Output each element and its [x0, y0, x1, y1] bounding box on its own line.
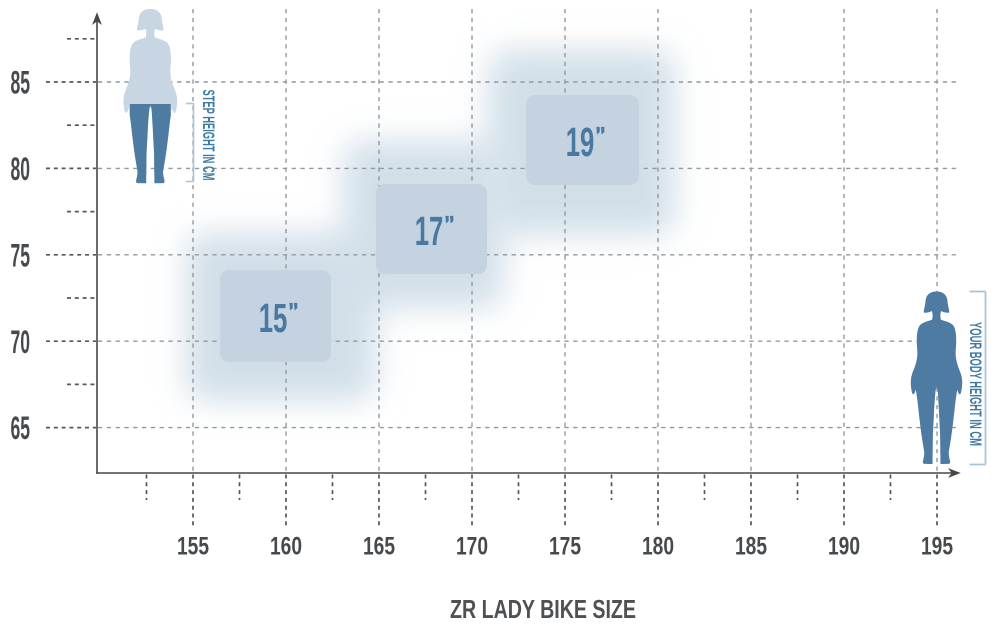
svg-text:180: 180 — [642, 533, 674, 561]
svg-text:65: 65 — [11, 410, 31, 446]
svg-text:85: 85 — [11, 65, 31, 101]
svg-text:175: 175 — [549, 533, 581, 561]
svg-text:YOUR BODY HEIGHT IN CM: YOUR BODY HEIGHT IN CM — [966, 322, 985, 446]
svg-text:STEP HEIGHT IN CM: STEP HEIGHT IN CM — [199, 90, 218, 181]
svg-text:160: 160 — [270, 533, 302, 561]
svg-text:190: 190 — [828, 533, 860, 561]
svg-text:195: 195 — [921, 533, 953, 561]
svg-text:80: 80 — [11, 151, 31, 187]
svg-text:70: 70 — [11, 324, 31, 360]
svg-text:155: 155 — [177, 533, 209, 561]
svg-text:ZR LADY BIKE SIZE: ZR LADY BIKE SIZE — [450, 594, 636, 624]
svg-text:165: 165 — [363, 533, 395, 561]
svg-text:75: 75 — [11, 237, 31, 273]
svg-text:19: 19 — [566, 119, 595, 165]
svg-text:17: 17 — [415, 208, 444, 254]
svg-text:185: 185 — [735, 533, 767, 561]
svg-text:170: 170 — [456, 533, 488, 561]
svg-text:15: 15 — [259, 295, 288, 341]
